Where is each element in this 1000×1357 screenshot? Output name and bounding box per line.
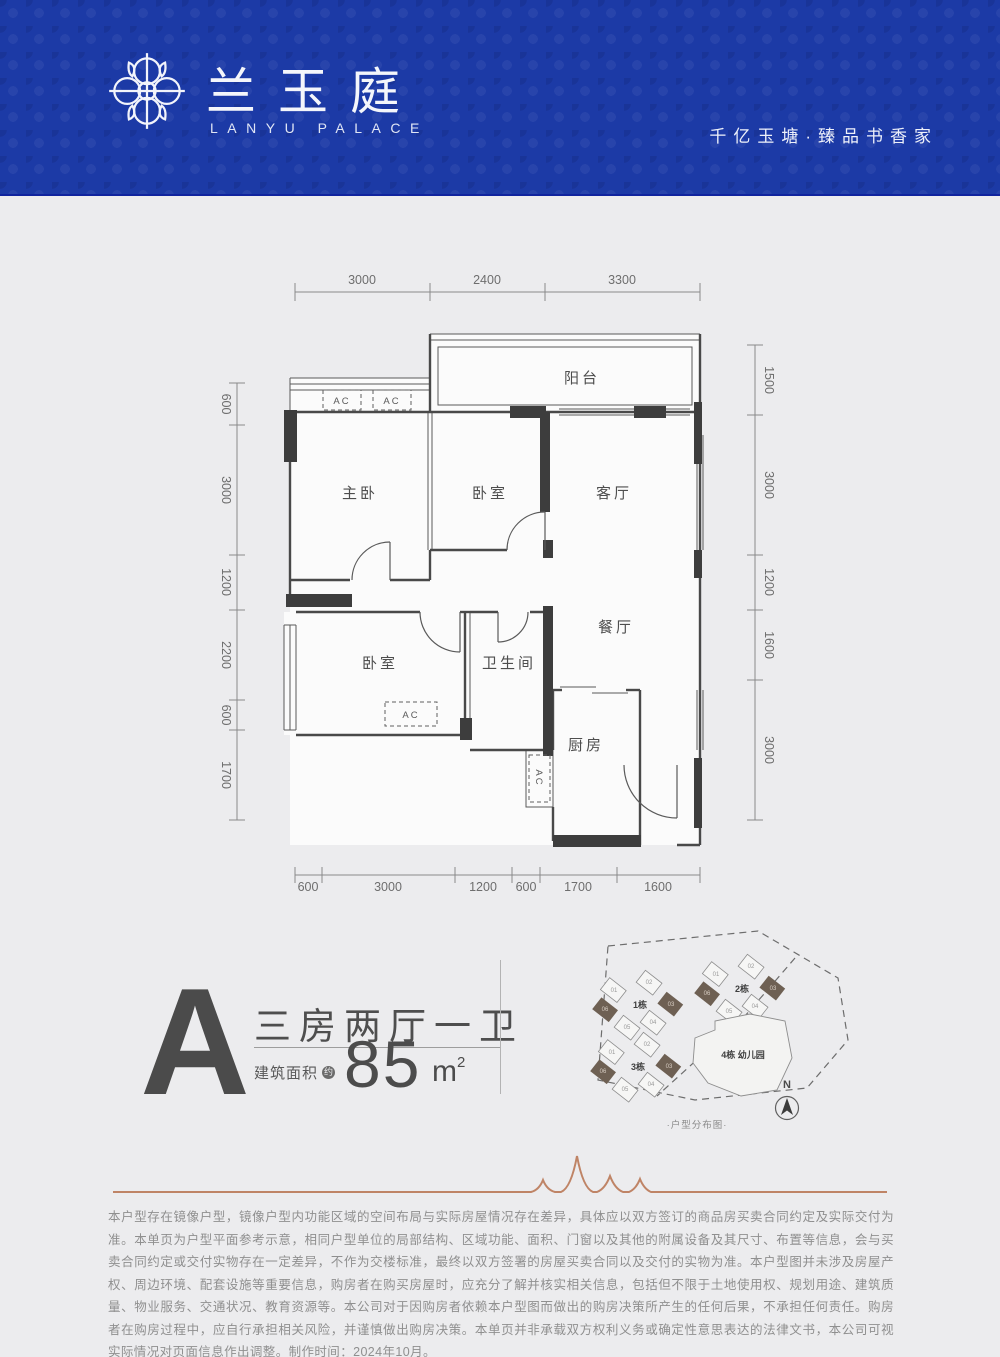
dim-right-5: 3000 xyxy=(762,736,776,764)
dim-left-2: 3000 xyxy=(219,476,233,504)
b3-unit-05: 05 xyxy=(622,1087,629,1093)
b3-unit-01: 01 xyxy=(609,1050,616,1056)
room-label-living: 客厅 xyxy=(596,485,632,502)
ac-label-3: AC xyxy=(402,710,419,721)
ac-label-1: AC xyxy=(333,396,350,407)
unit-type-letter: A xyxy=(140,972,250,1112)
room-label-kitchen: 厨房 xyxy=(568,737,604,754)
dim-left-5: 600 xyxy=(219,705,233,726)
dim-top-1: 3000 xyxy=(348,273,376,287)
room-label-bath: 卫生间 xyxy=(482,655,536,672)
brand-name-cn: 兰玉庭 xyxy=(206,52,422,124)
dim-left-6: 1700 xyxy=(219,761,233,789)
decorative-wave-divider xyxy=(113,1150,887,1204)
area-unit-power: 2 xyxy=(457,1054,465,1071)
b1-unit-01: 01 xyxy=(611,988,618,994)
b2-unit-01: 01 xyxy=(713,972,720,978)
b2-unit-04: 04 xyxy=(752,1004,759,1010)
dim-bottom-3: 1200 xyxy=(469,880,497,894)
ac-label-2: AC xyxy=(383,396,400,407)
b1-unit-02: 02 xyxy=(646,980,653,986)
north-label: N xyxy=(783,1079,791,1091)
building-4-label: 4栋 幼儿园 xyxy=(721,1049,765,1060)
dim-right-1: 1500 xyxy=(762,366,776,394)
room-label-bedroom3: 卧室 xyxy=(362,655,398,672)
building-1-label: 1栋 xyxy=(633,999,647,1010)
dim-bottom-4: 600 xyxy=(516,880,537,894)
b3-unit-02: 02 xyxy=(644,1042,651,1048)
dim-bottom-1: 600 xyxy=(298,880,319,894)
dim-bottom-2: 3000 xyxy=(374,880,402,894)
siteplan-map: 01 02 03 04 05 06 1栋 xyxy=(545,918,875,1148)
floorplan-drawing: 3000 2400 3300 600 3000 1200 2200 600 17… xyxy=(210,250,790,920)
building-cluster-1: 01 02 03 04 05 06 1栋 xyxy=(592,970,683,1040)
b1-unit-04: 04 xyxy=(650,1020,657,1026)
building-2-label: 2栋 xyxy=(735,983,749,994)
dim-left-1: 600 xyxy=(219,394,233,415)
area-prefix-label: 建筑面积 xyxy=(254,1062,318,1083)
b1-unit-05: 05 xyxy=(624,1025,631,1031)
area-unit-m: m xyxy=(432,1055,457,1088)
header-tagline: 千亿玉塘·臻品书香家 xyxy=(709,122,938,147)
brand-name-en: LANYU PALACE xyxy=(210,120,429,136)
area-unit: m2 xyxy=(432,1054,465,1089)
dim-right-3: 1200 xyxy=(762,568,776,596)
area-value: 85 xyxy=(344,1026,421,1102)
building-4-kindergarten: 4栋 幼儿园 xyxy=(693,1014,792,1096)
b2-unit-06: 06 xyxy=(704,991,711,997)
b3-unit-06: 06 xyxy=(600,1069,607,1075)
ac-label-4: AC xyxy=(533,769,544,786)
b2-unit-05: 05 xyxy=(726,1009,733,1015)
dim-top-3: 3300 xyxy=(608,273,636,287)
header-banner: 兰玉庭 LANYU PALACE 千亿玉塘·臻品书香家 xyxy=(0,0,1000,196)
b1-unit-06: 06 xyxy=(602,1007,609,1013)
b3-unit-03: 03 xyxy=(666,1064,673,1070)
b1-unit-03: 03 xyxy=(668,1002,675,1008)
dim-left-3: 1200 xyxy=(219,568,233,596)
b2-unit-02: 02 xyxy=(748,964,755,970)
legal-disclaimer-text: 本户型存在镜像户型，镜像户型内功能区域的空间布局与实际房屋情况存在差异，具体应以… xyxy=(108,1206,894,1357)
vertical-divider xyxy=(500,960,501,1094)
b3-unit-04: 04 xyxy=(648,1082,655,1088)
room-label-balcony: 阳台 xyxy=(564,370,600,387)
dim-left-4: 2200 xyxy=(219,641,233,669)
dim-bottom-6: 1600 xyxy=(644,880,672,894)
flyer-page: 兰玉庭 LANYU PALACE 千亿玉塘·臻品书香家 xyxy=(0,0,1000,1357)
building-cluster-3: 01 02 03 04 05 06 3栋 xyxy=(590,1032,681,1102)
b2-unit-03: 03 xyxy=(770,986,777,992)
dim-bottom-5: 1700 xyxy=(564,880,592,894)
dim-right-2: 3000 xyxy=(762,471,776,499)
dim-top-2: 2400 xyxy=(473,273,501,287)
building-cluster-2: 01 02 03 04 05 06 2栋 xyxy=(694,954,785,1024)
room-label-master: 主卧 xyxy=(342,485,378,502)
building-3-label: 3栋 xyxy=(631,1061,645,1072)
siteplan-caption: ·户型分布图· xyxy=(667,1119,728,1131)
room-label-dining: 餐厅 xyxy=(598,619,634,636)
area-approx-badge: 约 xyxy=(322,1066,335,1079)
room-label-bedroom2: 卧室 xyxy=(472,485,508,502)
dim-right-4: 1600 xyxy=(762,631,776,659)
brand-logo-flower-icon xyxy=(104,48,190,134)
